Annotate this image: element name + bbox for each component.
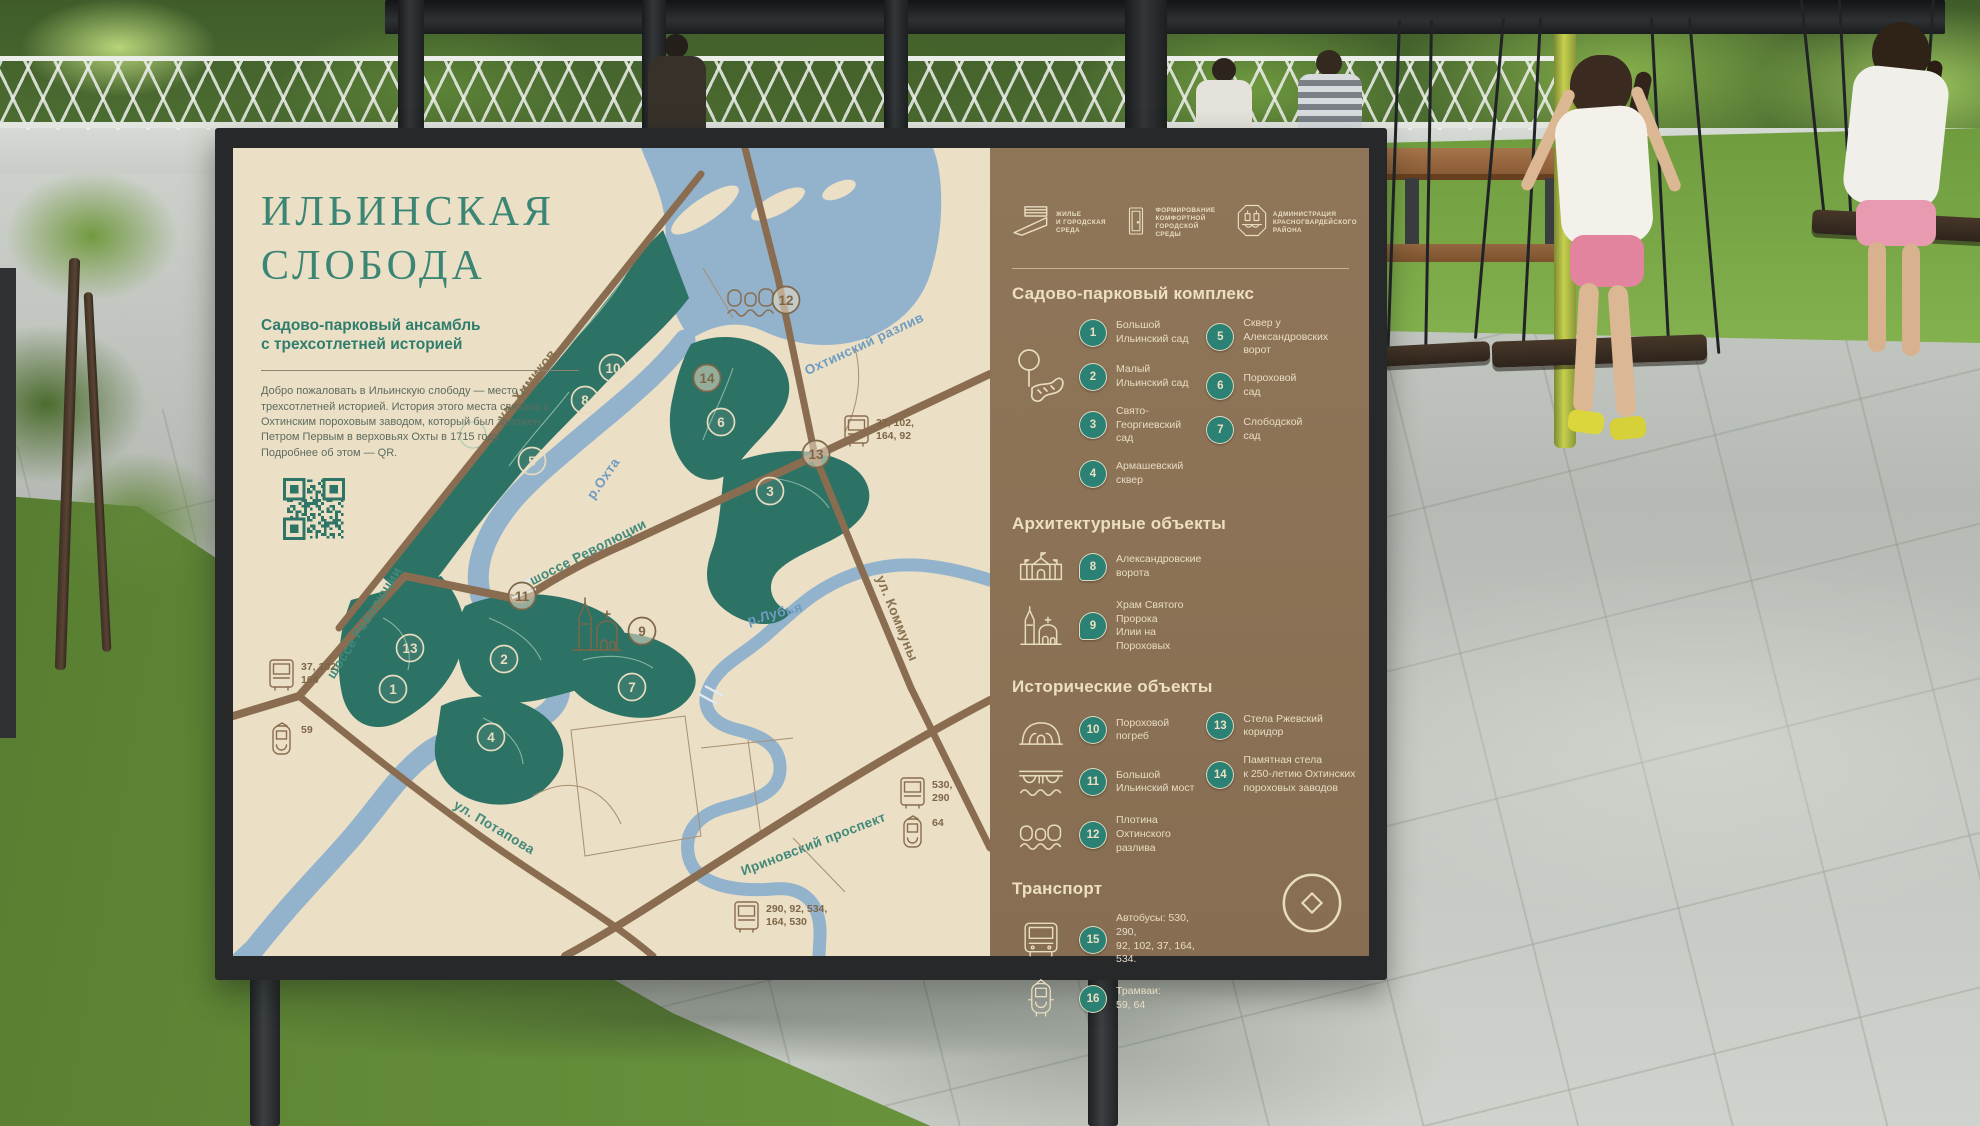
legend-item: 6Пороховой сад [1206, 370, 1359, 402]
legend-item: 12Плотина Охтинского разлива [1012, 814, 1206, 855]
legend-item-label: Сквер у Александровских ворот [1243, 317, 1359, 358]
okhta-flood-water [641, 148, 941, 345]
svg-text:4: 4 [487, 730, 495, 745]
map-marker-10: 10 [600, 355, 627, 382]
national-project-logo: ЖИЛЬЕИ ГОРОДСКАЯ СРЕДА [1010, 205, 1107, 242]
legend-item: 15Автобусы: 530, 290, 92, 102, 37, 164, … [1012, 912, 1206, 967]
gate-icon [1012, 547, 1070, 587]
emblem-logo-icon [1237, 204, 1267, 242]
legend-item-label: Пороховой сад [1243, 372, 1296, 399]
legend-marker-11: 11 [1079, 768, 1107, 796]
garden-icon [1014, 346, 1066, 431]
map-marker-14: 14 [694, 365, 721, 392]
cellar-icon [1012, 710, 1070, 750]
legend-item-label: Свято-Георгиевский сад [1116, 405, 1206, 446]
legend-item: 8Александровские ворота [1012, 547, 1206, 587]
comfort-environment-logo: ФОРМИРОВАНИЕКОМФОРТНОЙГОРОДСКОЙ СРЕДЫ [1123, 205, 1220, 242]
sign-description: Добро пожаловать в Ильинскую слободу — м… [261, 384, 561, 461]
svg-text:59: 59 [301, 724, 313, 736]
svg-text:7: 7 [628, 680, 636, 695]
map-marker-2: 2 [491, 646, 518, 673]
legend-item: 16Трамваи: 59, 64 [1012, 979, 1206, 1019]
svg-text:530,290: 530,290 [932, 779, 953, 804]
legend-section-heading: Исторические объекты [1012, 677, 1359, 697]
map-marker-4: 4 [478, 724, 505, 751]
svg-text:37, 102,164, 92: 37, 102,164, 92 [876, 417, 914, 442]
map-marker-11: 11 [509, 583, 536, 610]
church-icon [1012, 606, 1070, 646]
divider [261, 370, 579, 371]
svg-text:9: 9 [638, 624, 646, 639]
legend-marker-16: 16 [1079, 985, 1107, 1013]
legend-section: Исторические объекты10Пороховой погреб11… [1012, 677, 1359, 855]
bushes-left [0, 140, 230, 620]
map-marker-7: 7 [619, 674, 646, 701]
round-diamond-logo [1279, 870, 1345, 936]
qr-code [283, 478, 345, 540]
legend-marker-7: 7 [1206, 416, 1234, 444]
legend-item-label: Александровские ворота [1116, 553, 1201, 580]
legend-marker-2: 2 [1079, 363, 1107, 391]
legend-item-label: Трамваи: 59, 64 [1116, 985, 1161, 1012]
legend-item-label: Малый Ильинский сад [1116, 363, 1189, 390]
legend-item: 9Храм Святого Пророка Илии на Пороховых [1012, 599, 1206, 654]
svg-text:12: 12 [778, 293, 793, 308]
legend-item: 1Большой Ильинский сад [1012, 317, 1206, 349]
map-marker-13: 13 [803, 441, 830, 468]
legend-item-label: Большой Ильинский сад [1116, 319, 1189, 346]
partner-logos: ЖИЛЬЕИ ГОРОДСКАЯ СРЕДА ФОРМИРОВАНИЕКОМФО… [1010, 204, 1357, 242]
pergola-post [884, 0, 908, 140]
district-administration-logo: АДМИНИСТРАЦИЯКРАСНОГВАРДЕЙСКОГОРАЙОНА [1237, 204, 1357, 242]
legend-section: Садово-парковый комплекс1Большой Ильинск… [1012, 284, 1359, 490]
legend-item-label: Памятная стела к 250-летию Охтинских пор… [1243, 754, 1355, 795]
legend-item-label: Автобусы: 530, 290, 92, 102, 37, 164, 53… [1116, 912, 1206, 967]
legend-item-label: Плотина Охтинского разлива [1116, 814, 1206, 855]
legend-item: 10Пороховой погреб [1012, 710, 1206, 750]
svg-text:14: 14 [699, 371, 715, 386]
sign-subtitle: Садово-парковый ансамбль с трехсотлетней… [261, 316, 597, 355]
legend-marker-12: 12 [1079, 821, 1107, 849]
bus-icon [1012, 920, 1070, 960]
map-panel: 37, 102,164 59 37, 102,164, 92 530,290 6… [233, 148, 990, 956]
legend-panel: ЖИЛЬЕИ ГОРОДСКАЯ СРЕДА ФОРМИРОВАНИЕКОМФО… [990, 148, 1369, 956]
svg-text:10: 10 [605, 361, 620, 376]
legend-marker-4: 4 [1079, 460, 1107, 488]
tram-icon [1012, 979, 1070, 1019]
legend-item-label: Стела Ржевский коридор [1243, 713, 1323, 740]
legend-item-label: Храм Святого Пророка Илии на Пороховых [1116, 599, 1206, 654]
legend-item-label: Армашевский сквер [1116, 460, 1183, 487]
fence-post-left [0, 268, 16, 738]
legend-marker-8: 8 [1079, 553, 1107, 581]
svg-text:11: 11 [515, 589, 530, 604]
map-marker-12: 12 [773, 287, 800, 314]
sign-intro-block: ИЛЬИНСКАЯСЛОБОДА Садово-парковый ансамбл… [261, 186, 597, 461]
map-marker-6: 6 [708, 409, 735, 436]
legend-item: 4Армашевский сквер [1012, 458, 1206, 490]
child-on-swing [1540, 55, 1720, 465]
legend-section-heading: Садово-парковый комплекс [1012, 284, 1359, 304]
svg-text:1: 1 [389, 682, 397, 697]
legend-item-label: Большой Ильинский мост [1116, 769, 1194, 796]
legend-section: Архитектурные объекты8Александровские во… [1012, 514, 1359, 654]
information-sign: 37, 102,164 59 37, 102,164, 92 530,290 6… [215, 128, 1387, 980]
child-on-swing [1828, 22, 1980, 362]
map-marker-9: 9 [629, 618, 656, 645]
map-marker-1: 1 [380, 676, 407, 703]
legend-item: 11Большой Ильинский мост [1012, 762, 1206, 802]
legend-marker-1: 1 [1079, 319, 1107, 347]
legend-marker-6: 6 [1206, 372, 1234, 400]
legend-item-label: Слободской сад [1243, 416, 1302, 443]
park-photo-scene: 37, 102,164 59 37, 102,164, 92 530,290 6… [0, 0, 1980, 1126]
map-marker-13: 13 [397, 635, 424, 662]
legend-item: 13Стела Ржевский коридор [1206, 710, 1359, 742]
door-logo-icon [1123, 205, 1149, 242]
svg-text:64: 64 [932, 817, 944, 829]
legend-marker-14: 14 [1206, 761, 1234, 789]
map-marker-3: 3 [757, 478, 784, 505]
page-title: ИЛЬИНСКАЯСЛОБОДА [261, 186, 597, 294]
legend-section-heading: Архитектурные объекты [1012, 514, 1359, 534]
bridge-icon [1012, 762, 1070, 802]
svg-text:2: 2 [500, 652, 508, 667]
legend-item: 14Памятная стела к 250-летию Охтинских п… [1206, 754, 1359, 795]
table-leg [1405, 178, 1419, 244]
legend-marker-3: 3 [1079, 411, 1107, 439]
legend-marker-5: 5 [1206, 323, 1234, 351]
svg-text:13: 13 [808, 447, 824, 462]
legend-marker-15: 15 [1079, 926, 1107, 954]
legend-marker-13: 13 [1206, 712, 1234, 740]
legend-marker-9: 9 [1079, 612, 1107, 640]
svg-text:13: 13 [402, 641, 418, 656]
legend-marker-10: 10 [1079, 716, 1107, 744]
legend-item-label: Пороховой погреб [1116, 717, 1169, 744]
svg-text:3: 3 [766, 484, 774, 499]
divider [1012, 268, 1349, 269]
legend-item: 7Слободской сад [1206, 414, 1359, 446]
flag-logo-icon [1010, 205, 1050, 242]
svg-text:6: 6 [717, 415, 725, 430]
legend-item: 5Сквер у Александровских ворот [1206, 317, 1359, 358]
sign-leg-left [250, 962, 280, 1126]
dam-icon [1012, 815, 1070, 855]
